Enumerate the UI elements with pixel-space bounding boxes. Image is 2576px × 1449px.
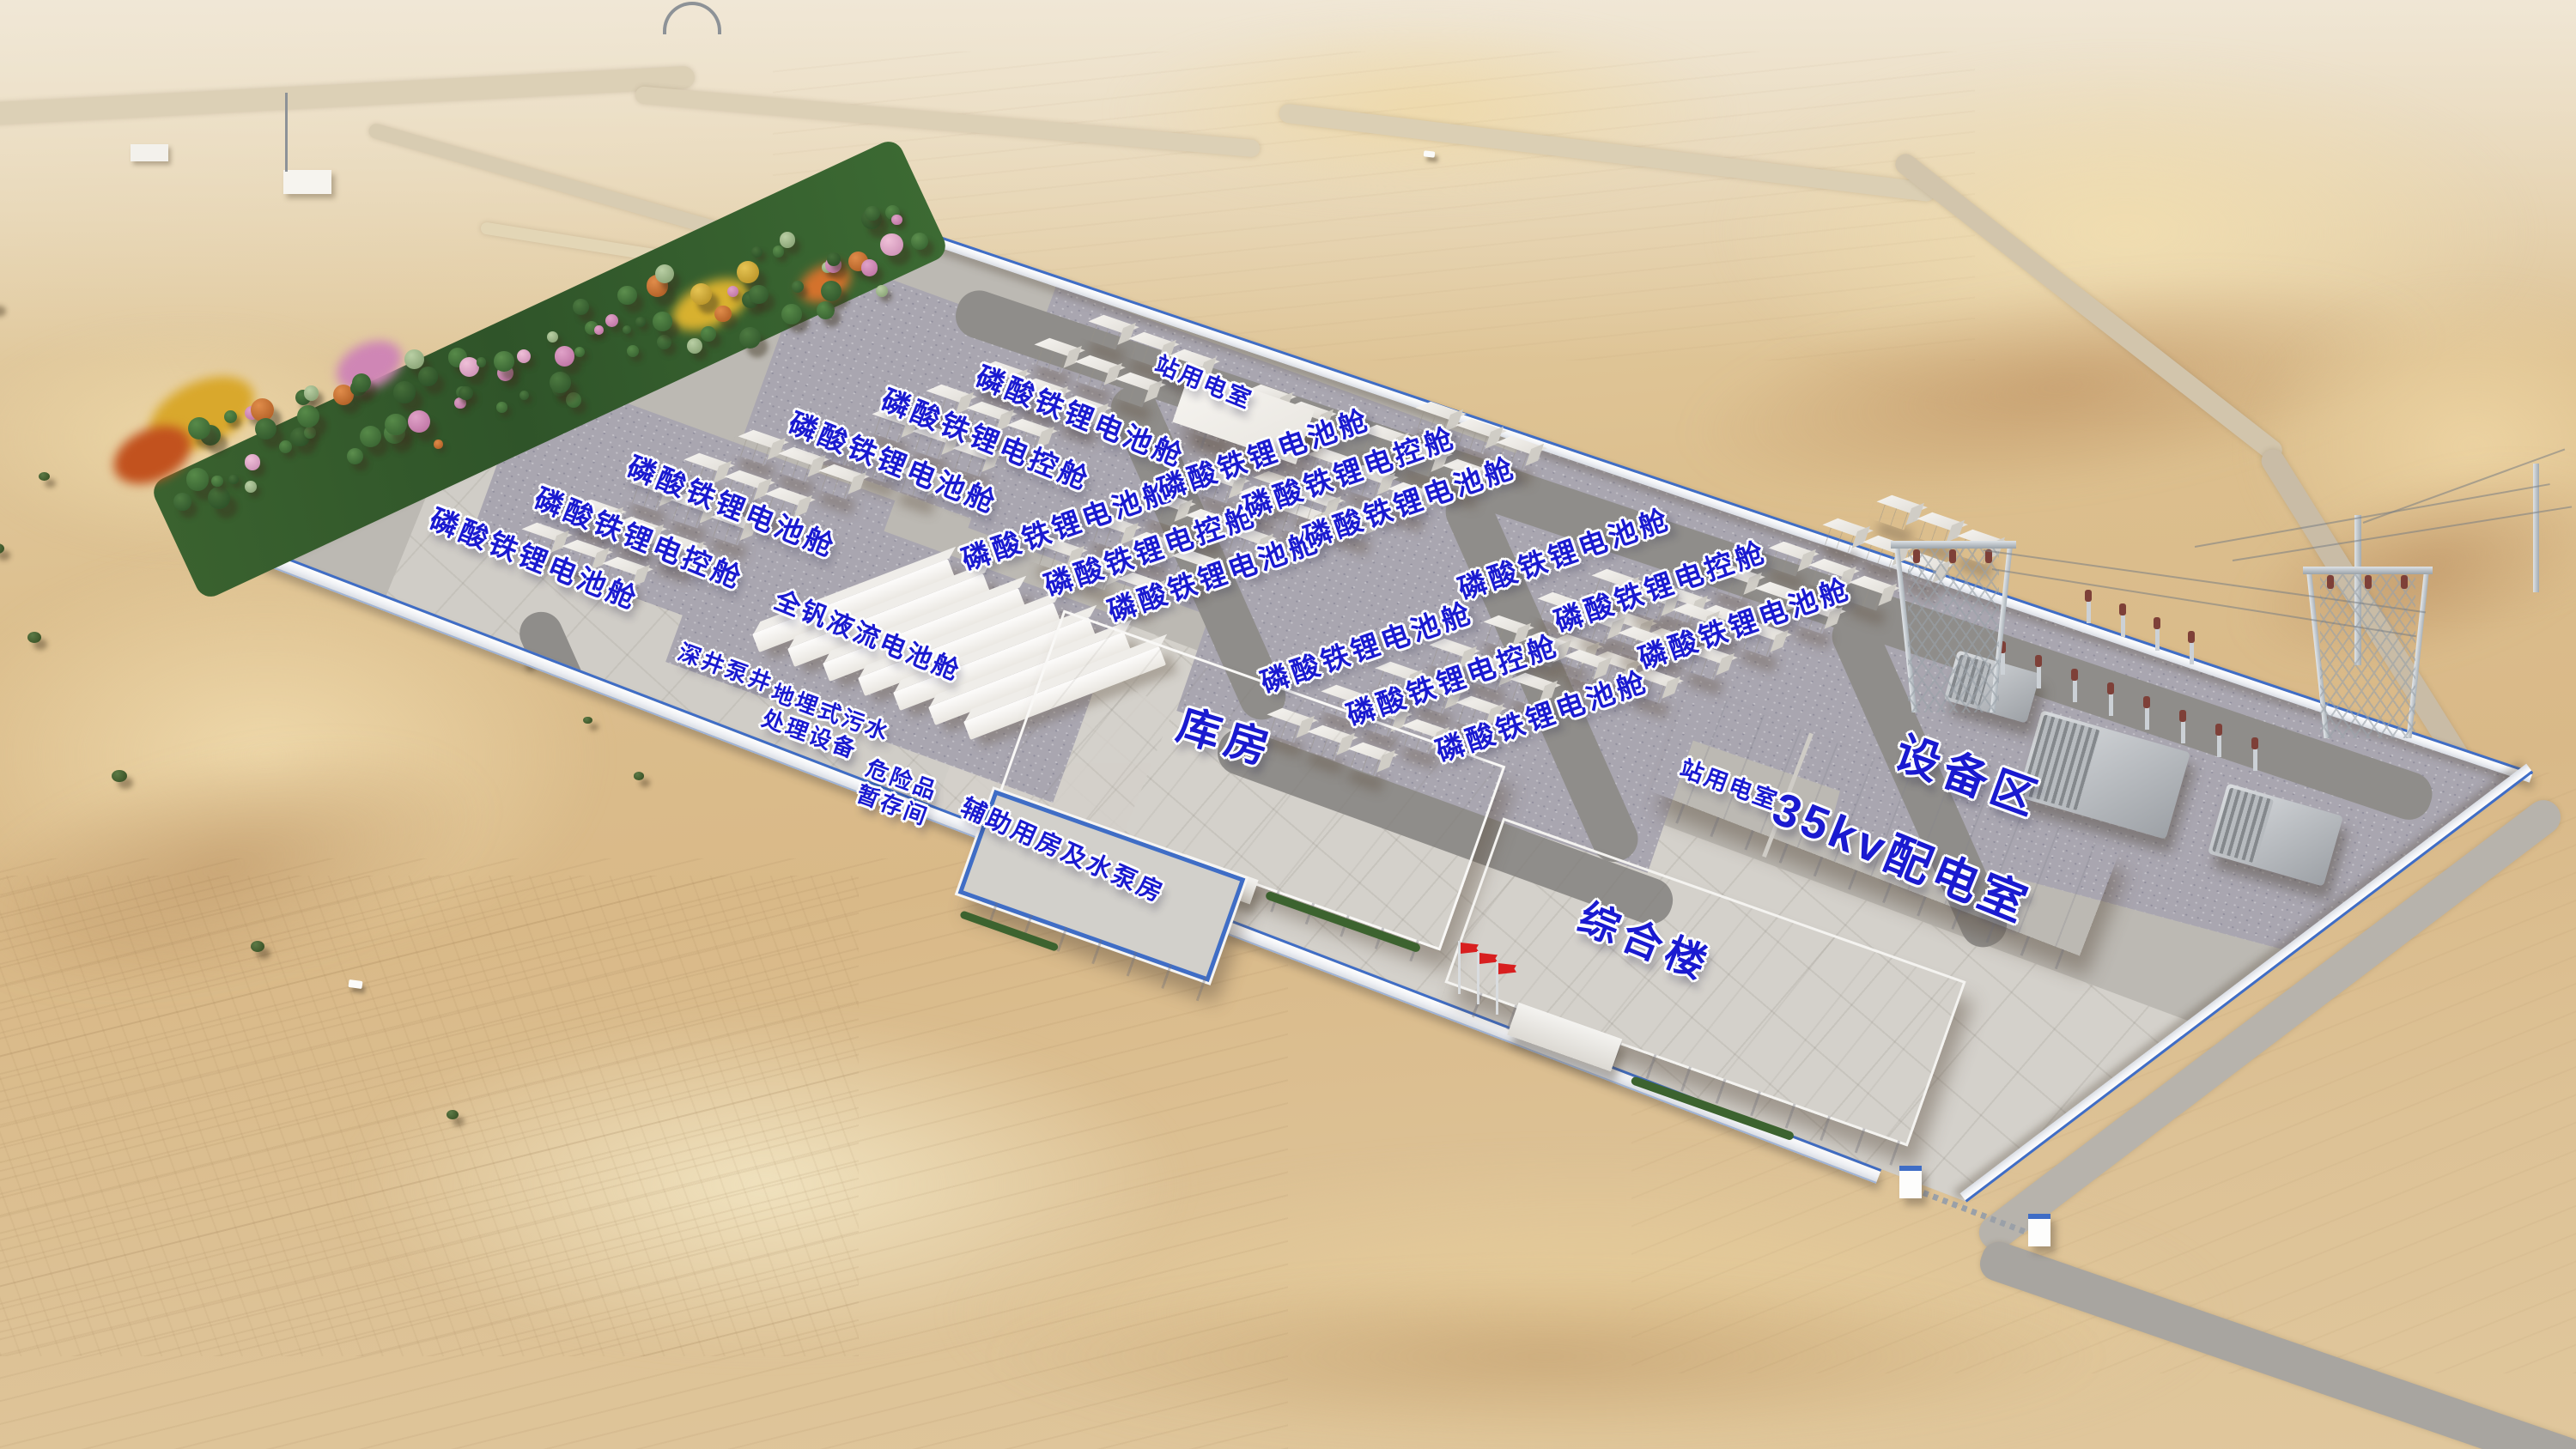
tree — [623, 325, 631, 334]
dune-highlight — [1116, 17, 1735, 206]
tree — [655, 264, 674, 283]
tree — [817, 301, 835, 319]
tree — [566, 392, 581, 408]
insulator — [2365, 575, 2372, 589]
tree — [714, 306, 732, 323]
tree — [459, 386, 473, 401]
shrub — [39, 472, 50, 481]
vehicle — [1424, 150, 1436, 157]
tree — [228, 475, 239, 485]
bus-support-post — [2087, 601, 2091, 623]
tree — [304, 385, 319, 401]
insulator — [2401, 575, 2408, 589]
aerial-site-rendering: 站用电室磷酸铁锂电池舱磷酸铁锂电控舱磷酸铁锂电池舱磷酸铁锂电池舱磷酸铁锂电控舱磷… — [0, 0, 2576, 1449]
insulator — [1913, 549, 1920, 563]
tree — [186, 468, 210, 491]
vehicle — [348, 979, 362, 989]
distant-building — [131, 144, 168, 161]
tree — [911, 233, 928, 250]
tree — [827, 252, 841, 266]
tree — [418, 367, 438, 386]
tree — [224, 410, 237, 423]
gantry-crossbeam — [1891, 541, 2016, 549]
tree — [773, 246, 784, 257]
bus-support-post — [2155, 628, 2160, 651]
tree — [594, 325, 604, 335]
gantry-crossbeam — [2303, 567, 2433, 574]
auxiliary-front-face — [955, 891, 1208, 1002]
dune-shadow — [987, 1270, 2104, 1442]
tree — [653, 312, 672, 331]
tree — [687, 338, 702, 354]
tree — [635, 317, 646, 327]
tree — [211, 476, 222, 487]
shrub — [634, 772, 644, 780]
tree — [297, 405, 319, 427]
tree — [245, 481, 257, 493]
shrub — [27, 632, 41, 643]
storage-container — [1868, 500, 1910, 530]
tree — [245, 454, 260, 470]
bus-support-post — [2037, 666, 2041, 688]
tree — [208, 487, 230, 509]
gate-pillar — [1899, 1166, 1922, 1198]
antenna-mast — [285, 93, 288, 172]
tree — [574, 347, 585, 357]
insulator — [2327, 575, 2334, 589]
bus-support-post — [2253, 749, 2257, 771]
transmission-tower — [2533, 464, 2539, 592]
substation-gantry-tower — [1898, 541, 2009, 712]
tree — [494, 351, 513, 371]
tree — [880, 233, 903, 257]
tree — [749, 285, 768, 304]
office-front-face — [1439, 981, 1907, 1168]
tree — [385, 414, 406, 435]
bus-support-post — [2145, 707, 2149, 730]
gate-pillar — [2028, 1214, 2050, 1246]
red-flag — [1477, 951, 1479, 1004]
bus-support-post — [2109, 694, 2113, 716]
red-flag — [1458, 941, 1461, 994]
bus-support-post — [2073, 680, 2077, 702]
tree — [861, 259, 878, 276]
tree — [865, 206, 879, 221]
red-flag — [1496, 961, 1498, 1015]
tree — [393, 381, 416, 403]
tree — [173, 493, 191, 511]
bus-support-post — [2217, 735, 2221, 757]
tree — [891, 215, 902, 226]
bus-support-post — [2181, 721, 2185, 743]
tree — [477, 357, 486, 367]
tree — [751, 246, 762, 258]
shrub — [0, 543, 4, 554]
tree — [352, 373, 371, 392]
tree — [737, 261, 759, 283]
tree — [304, 427, 316, 439]
tree — [727, 286, 738, 297]
tree — [408, 410, 430, 433]
tree — [617, 286, 636, 305]
tree — [517, 349, 531, 363]
shrub — [251, 941, 264, 952]
tree — [496, 402, 507, 413]
tree — [739, 327, 761, 349]
insulator — [1949, 549, 1956, 563]
tree — [781, 304, 802, 324]
bus-support-post — [2121, 615, 2125, 637]
tree — [255, 418, 276, 440]
distant-building — [283, 170, 331, 194]
tree — [434, 440, 442, 448]
shrub — [583, 717, 592, 724]
tree — [555, 346, 574, 366]
bus-support-post — [2190, 642, 2194, 664]
substation-gantry-tower — [2310, 567, 2426, 738]
gantry-lattice — [1908, 549, 1999, 712]
